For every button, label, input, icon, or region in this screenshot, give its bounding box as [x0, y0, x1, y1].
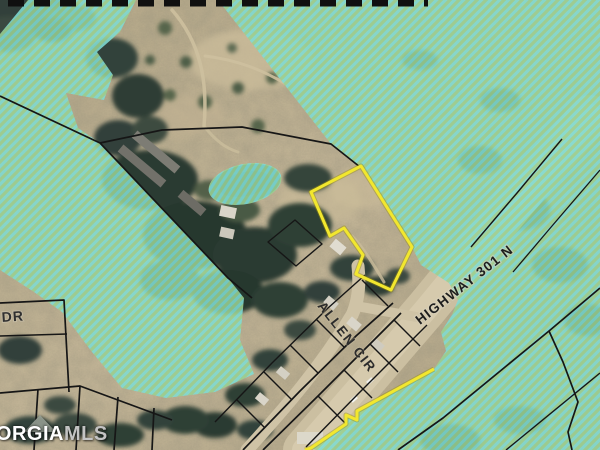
watermark-brand-primary: GEORGIA — [0, 424, 64, 444]
watermark-brand-secondary: MLS — [64, 424, 108, 444]
map-canvas: ALLEN CIR HIGHWAY 301 N DR — [0, 0, 600, 450]
parcel-map-image[interactable]: ALLEN CIR HIGHWAY 301 N DR GEORGIAMLS — [0, 0, 600, 450]
georgia-mls-watermark: GEORGIAMLS — [0, 424, 108, 444]
dr-street-label: DR — [1, 307, 24, 325]
